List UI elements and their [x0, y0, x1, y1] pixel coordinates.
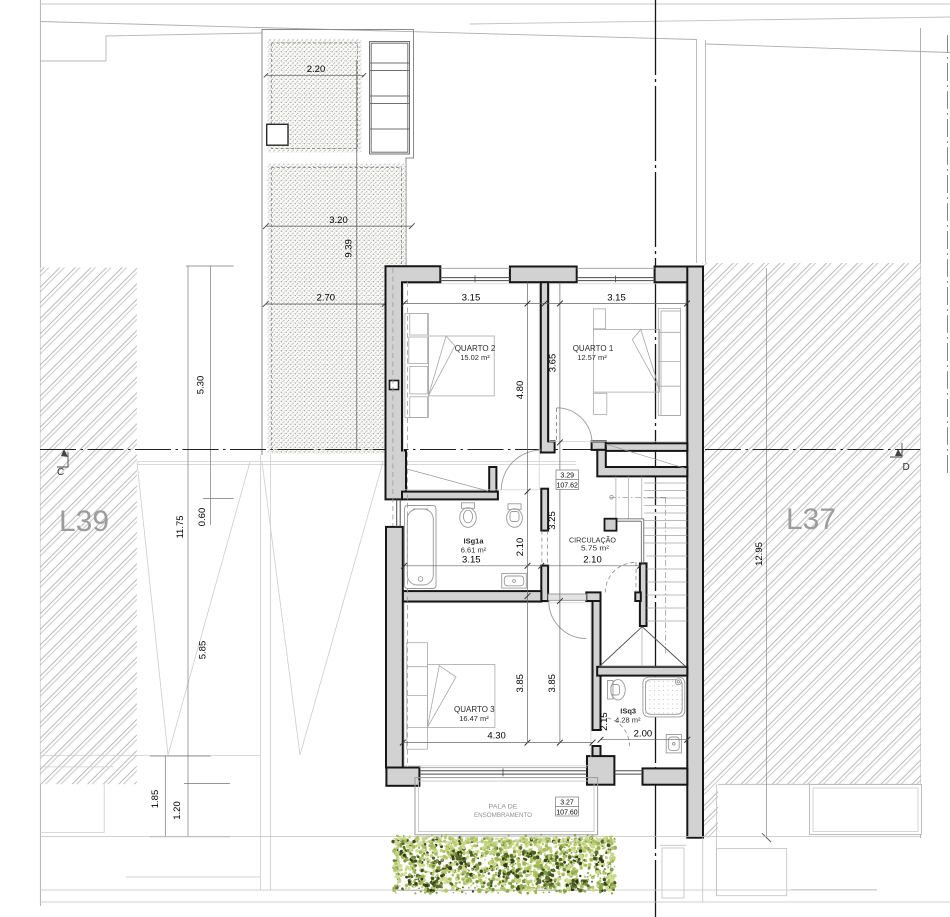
svg-text:D: D	[903, 462, 910, 473]
svg-text:2.20: 2.20	[307, 64, 326, 75]
svg-text:PALA DE: PALA DE	[489, 804, 518, 811]
svg-text:QUARTO 1: QUARTO 1	[573, 344, 614, 353]
svg-text:16.47 m²: 16.47 m²	[459, 714, 489, 723]
svg-text:3.29: 3.29	[560, 473, 574, 480]
svg-text:ISg1a: ISg1a	[463, 537, 484, 546]
svg-text:L39: L39	[59, 505, 109, 538]
svg-text:4.80: 4.80	[515, 381, 526, 400]
svg-text:11.75: 11.75	[175, 515, 186, 538]
svg-text:3.20: 3.20	[329, 215, 348, 226]
svg-text:12.95: 12.95	[754, 542, 765, 566]
svg-text:QUARTO 2: QUARTO 2	[455, 344, 496, 353]
svg-text:3.85: 3.85	[547, 674, 558, 693]
svg-text:3.15: 3.15	[462, 292, 481, 303]
svg-text:5.30: 5.30	[196, 376, 207, 395]
svg-text:3.25: 3.25	[547, 511, 558, 530]
svg-text:2.00: 2.00	[634, 728, 653, 739]
svg-text:15.02 m²: 15.02 m²	[460, 353, 490, 362]
svg-text:5.85: 5.85	[198, 641, 209, 660]
svg-text:3.15: 3.15	[462, 555, 481, 566]
svg-text:107.62: 107.62	[556, 483, 578, 490]
svg-text:2.15: 2.15	[599, 712, 610, 731]
svg-text:C: C	[57, 467, 64, 478]
svg-text:2.10: 2.10	[515, 538, 526, 557]
svg-text:QUARTO 3: QUARTO 3	[454, 705, 495, 714]
svg-text:2.10: 2.10	[583, 555, 602, 566]
svg-text:4.28 m²: 4.28 m²	[615, 716, 641, 725]
svg-text:ISq3: ISq3	[620, 707, 636, 716]
svg-text:5.75 m²: 5.75 m²	[581, 544, 610, 553]
svg-text:107.60: 107.60	[556, 809, 578, 816]
svg-text:ENSOMBRAMENTO: ENSOMBRAMENTO	[474, 812, 532, 819]
svg-text:4.30: 4.30	[487, 731, 506, 742]
svg-text:3.85: 3.85	[515, 674, 526, 693]
svg-text:0.60: 0.60	[197, 508, 208, 527]
svg-text:2.70: 2.70	[317, 293, 336, 304]
svg-text:9.39: 9.39	[344, 239, 355, 258]
svg-text:6.61 m²: 6.61 m²	[461, 546, 487, 555]
svg-text:1.20: 1.20	[172, 801, 183, 820]
svg-text:3.15: 3.15	[607, 292, 626, 303]
svg-text:3.27: 3.27	[560, 800, 574, 807]
svg-text:1.85: 1.85	[150, 790, 161, 809]
svg-text:L37: L37	[786, 503, 836, 536]
svg-text:3.65: 3.65	[548, 354, 559, 373]
svg-text:12.57 m²: 12.57 m²	[577, 353, 607, 362]
